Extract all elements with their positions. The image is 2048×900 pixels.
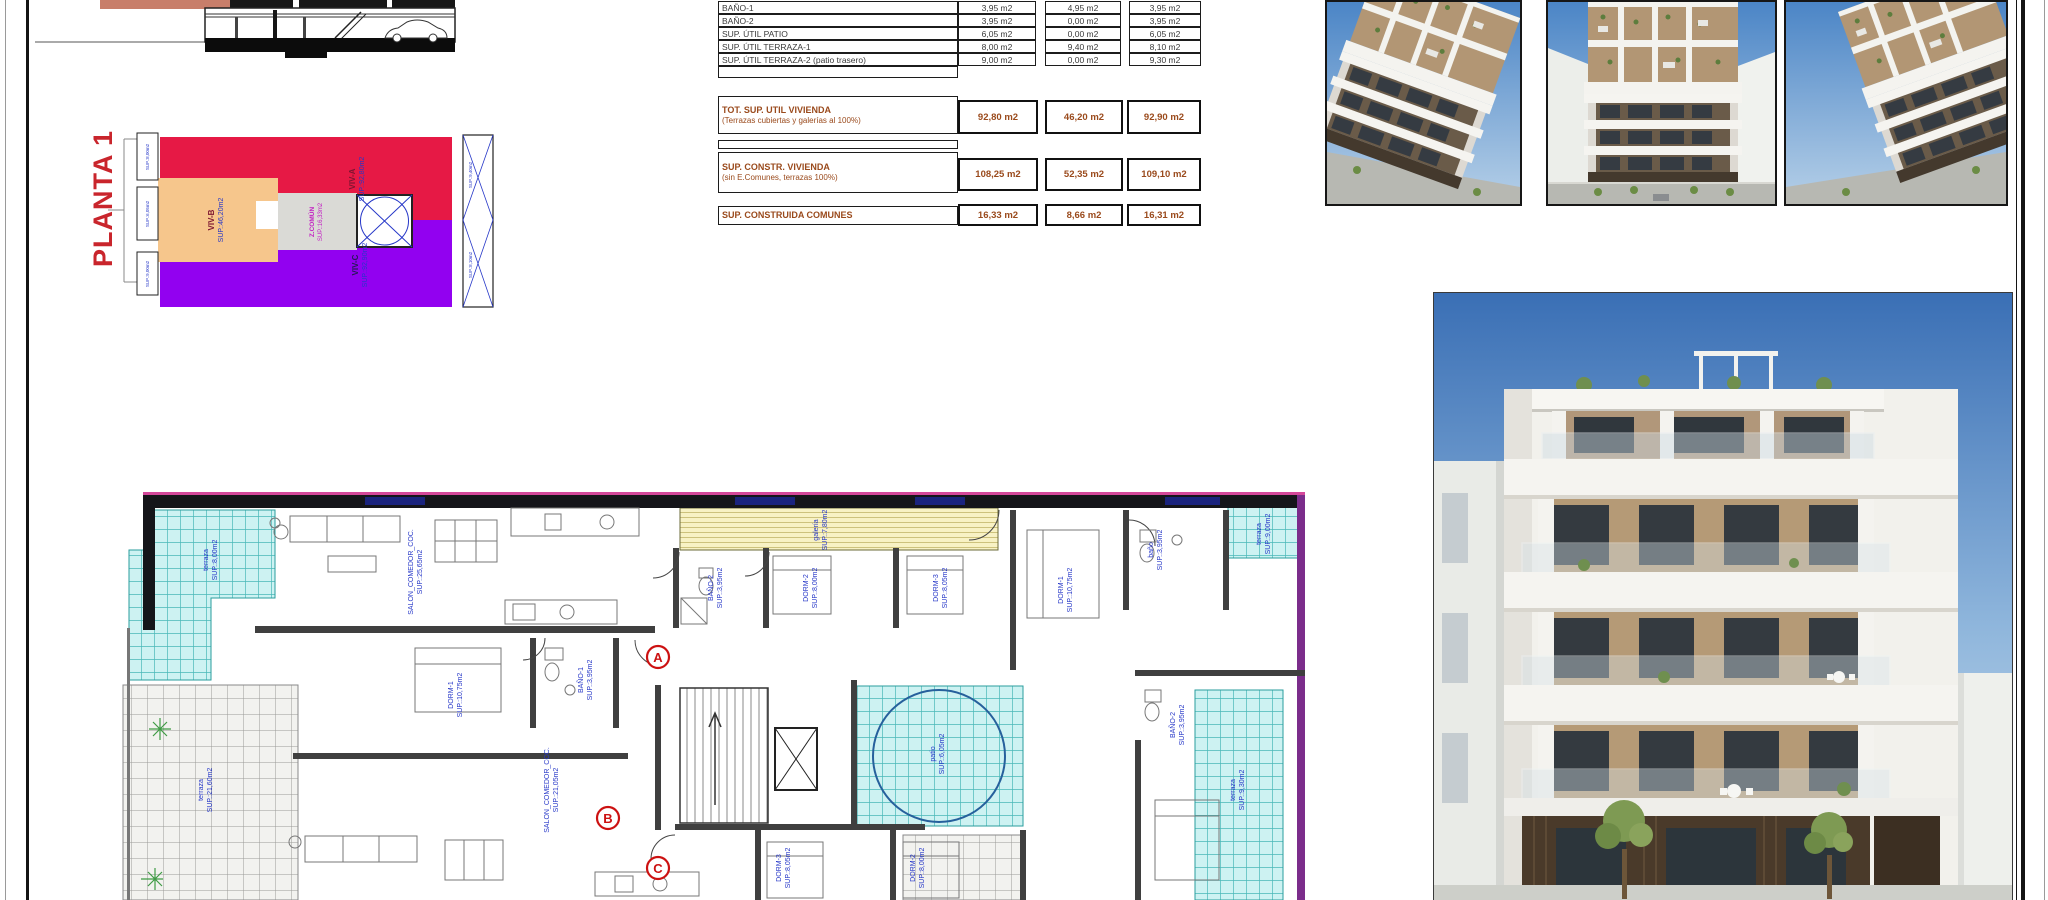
svg-text:DORM-3: DORM-3	[933, 574, 940, 602]
room-label: DORM-1SUP.:10,75m2	[1058, 568, 1074, 613]
table-cell: 9,40 m2	[1045, 40, 1121, 53]
svg-text:A: A	[653, 650, 663, 665]
svg-text:terraza: terraza	[198, 779, 205, 801]
sheet-border-right-inner	[2016, 0, 2017, 900]
room-label: DORM-3SUP.:8,05m2	[776, 848, 792, 889]
svg-text:SUP.:9,00m2: SUP.:9,00m2	[1265, 514, 1272, 555]
plan-top-accent-line	[143, 492, 1305, 495]
neighbor-left	[1548, 48, 1588, 204]
table-cell: 3,95 m2	[958, 14, 1036, 27]
facade-render	[1433, 292, 2013, 900]
pavement	[1434, 885, 2012, 900]
table-cell: 6,05 m2	[958, 27, 1036, 40]
table-row-label: SUP. ÚTIL TERRAZA-2 (patio trasero)	[718, 53, 958, 66]
unit-label-z-comun: Z.COMÚN SUP.:16,33m2	[307, 202, 324, 241]
svg-text:SUP.:92,90m2: SUP.:92,90m2	[362, 243, 369, 288]
plan-sheet: PLANTA 1	[0, 0, 2048, 900]
planta1-title: PLANTA 1	[88, 130, 118, 267]
svg-text:DORM-1: DORM-1	[1058, 576, 1065, 604]
svg-text:DORM-2: DORM-2	[910, 854, 917, 882]
svg-text:Z.COMÚN: Z.COMÚN	[307, 207, 316, 238]
svg-text:SUP.:21,60m2: SUP.:21,60m2	[207, 768, 214, 813]
sheet-border-left-thick	[26, 0, 29, 900]
planta1-title-text: PLANTA 1	[88, 130, 118, 267]
table-row-label: BAÑO-2	[718, 14, 958, 27]
ground-floor	[1504, 798, 1958, 900]
stair-col-label-2: SUP.:8,10m2	[468, 251, 473, 278]
summary-value: 108,25 m2	[958, 158, 1038, 191]
sheet-border-right-thick	[2021, 0, 2025, 900]
svg-text:VIV-A: VIV-A	[348, 168, 357, 189]
summary-label-total: TOT. SUP. UTIL VIVIENDA (Terrazas cubier…	[718, 96, 958, 134]
svg-text:SUP.:3,95m2: SUP.:3,95m2	[1179, 705, 1186, 746]
svg-text:SUP.:10,75m2: SUP.:10,75m2	[457, 673, 464, 718]
plan-left-wall	[143, 495, 155, 630]
section-marker-a: A	[647, 646, 669, 668]
stair-core-symbol	[357, 195, 412, 247]
svg-text:SUP.:3,95m2: SUP.:3,95m2	[1157, 530, 1164, 571]
table-cell: 0,00 m2	[1045, 27, 1121, 40]
svg-text:SUP.:92,80m2: SUP.:92,80m2	[359, 157, 366, 202]
car	[1653, 194, 1669, 201]
room-label: SALON_COMEDOR_COC.SUP.:21,05m2	[544, 747, 560, 833]
svg-text:terraza: terraza	[203, 549, 210, 571]
table-row-label: BAÑO-1	[718, 1, 958, 14]
areas-table: BAÑO-1 3,95 m2 4,95 m2 3,95 m2 BAÑO-2 3,…	[718, 0, 1204, 232]
plan-right-wall	[1297, 495, 1305, 900]
svg-text:C: C	[653, 861, 663, 876]
table-cell: 0,00 m2	[1045, 14, 1121, 27]
elevator	[775, 728, 817, 790]
table-cell: 0,00 m2	[1045, 53, 1121, 66]
svg-text:SUP.:8,00m2: SUP.:8,00m2	[919, 848, 926, 889]
summary-value: 92,80 m2	[958, 100, 1038, 134]
room-label: BAÑO-2SUP.:3,95m2	[1168, 705, 1186, 746]
svg-text:SUP.:21,05m2: SUP.:21,05m2	[553, 768, 560, 813]
table-spacer	[718, 66, 958, 78]
svg-text:SUP.:3,95m2: SUP.:3,95m2	[587, 660, 594, 701]
svg-text:SUP.:8,05m2: SUP.:8,05m2	[785, 848, 792, 889]
room-label: SALON_COMEDOR_COC.SUP.:25,65m2	[408, 529, 424, 615]
svg-text:SUP.:25,65m2: SUP.:25,65m2	[417, 550, 424, 595]
gallery-strip	[680, 508, 998, 550]
neighbor-building-left	[1434, 461, 1504, 900]
svg-text:VIV-C: VIV-C	[351, 254, 360, 275]
sheet-border-left-thin	[5, 0, 6, 900]
svg-text:SUP.:9,30m2: SUP.:9,30m2	[1239, 770, 1246, 811]
aerial-building	[1584, 2, 1742, 184]
table-row-label: SUP. ÚTIL PATIO	[718, 27, 958, 40]
svg-text:terraza: terraza	[1230, 779, 1237, 801]
table-cell: 6,05 m2	[1129, 27, 1201, 40]
svg-text:DORM-3: DORM-3	[776, 854, 783, 882]
table-row-label: SUP. ÚTIL TERRAZA-1	[718, 40, 958, 53]
svg-text:BAÑO-2: BAÑO-2	[706, 575, 715, 601]
svg-text:galería: galería	[813, 519, 820, 541]
table-cell: 8,00 m2	[958, 40, 1036, 53]
facade-building	[1504, 351, 1958, 900]
table-cell: 4,95 m2	[1045, 1, 1121, 14]
table-cell: 3,95 m2	[1129, 14, 1201, 27]
svg-text:SUP.:16,33m2: SUP.:16,33m2	[318, 202, 324, 241]
svg-text:terraza: terraza	[1256, 523, 1263, 545]
neighbor-building-right	[1958, 673, 2012, 900]
edge-label-2: SUP.:6,05m2	[145, 200, 150, 227]
svg-text:BAÑO-1: BAÑO-1	[576, 667, 585, 693]
plan-top-wall	[143, 495, 1305, 508]
svg-text:SUP.:3,95m2: SUP.:3,95m2	[717, 568, 724, 609]
svg-text:VIV-B: VIV-B	[207, 209, 216, 230]
svg-text:SUP.:46,20m2: SUP.:46,20m2	[218, 198, 225, 243]
svg-text:DORM-1: DORM-1	[448, 681, 455, 709]
sheet-border-right-thin	[2044, 0, 2045, 900]
staircase	[680, 688, 768, 823]
stair-col-label-1: SUP.:9,40m2	[468, 161, 473, 188]
room-label: BAÑO-2SUP.:3,95m2	[706, 568, 724, 609]
table-spacer	[718, 140, 958, 149]
table-cell: 9,30 m2	[1129, 53, 1201, 66]
summary-value: 109,10 m2	[1127, 158, 1201, 191]
svg-text:DORM-2: DORM-2	[803, 574, 810, 602]
aerial-render-1	[1325, 0, 1522, 206]
table-cell: 9,00 m2	[958, 53, 1036, 66]
summary-value: 8,66 m2	[1045, 204, 1123, 226]
summary-value: 52,35 m2	[1045, 158, 1123, 191]
neighbor-right	[1738, 52, 1775, 204]
table-cell: 8,10 m2	[1129, 40, 1201, 53]
room-label: BAÑO-1SUP.:3,95m2	[576, 660, 594, 701]
section-drawing	[35, 0, 460, 58]
summary-value: 46,20 m2	[1045, 100, 1123, 134]
svg-text:SUP.:10,75m2: SUP.:10,75m2	[1067, 568, 1074, 613]
room-label: DORM-1SUP.:10,75m2	[448, 673, 464, 718]
floor-plan: A B C terrazaSUP.:8,00m2 SALON_COMEDOR_C…	[115, 490, 1320, 900]
table-cell: 3,95 m2	[1129, 1, 1201, 14]
summary-label-constr: SUP. CONSTR. VIVIENDA (sin E.Comunes, te…	[718, 152, 958, 193]
summary-label-comunes: SUP. CONSTRUIDA COMUNES	[718, 206, 958, 225]
svg-text:SUP.:8,00m2: SUP.:8,00m2	[812, 568, 819, 609]
svg-text:SUP.:7,80m2: SUP.:7,80m2	[822, 510, 829, 551]
svg-text:SUP.:8,00m2: SUP.:8,00m2	[212, 540, 219, 581]
section-base-slab	[205, 38, 455, 52]
right-terrace-column	[463, 135, 493, 307]
svg-text:baño: baño	[1148, 542, 1155, 558]
aerial-render-2	[1546, 0, 1777, 206]
table-cell: 3,95 m2	[958, 1, 1036, 14]
edge-label-1: SUP.:8,00m2	[145, 143, 150, 170]
edge-label-3: SUP.:9,00m2	[145, 260, 150, 287]
section-marker-c: C	[647, 857, 669, 879]
svg-text:SALON_COMEDOR_COC.: SALON_COMEDOR_COC.	[544, 747, 551, 833]
summary-value: 16,33 m2	[958, 204, 1038, 226]
svg-text:patio: patio	[930, 746, 937, 761]
svg-text:SUP.:6,05m2: SUP.:6,05m2	[939, 734, 946, 775]
room-label: DORM-3SUP.:8,05m2	[933, 568, 949, 609]
planta1-key-plan: PLANTA 1	[60, 95, 520, 343]
aerial-render-3	[1784, 0, 2008, 206]
svg-text:B: B	[603, 811, 612, 826]
section-marker-b: B	[597, 807, 619, 829]
summary-value: 92,90 m2	[1127, 100, 1201, 134]
summary-value: 16,31 m2	[1127, 204, 1201, 226]
room-label: DORM-2SUP.:8,00m2	[803, 568, 819, 609]
svg-text:BAÑO-2: BAÑO-2	[1168, 712, 1177, 738]
svg-text:SUP.:8,05m2: SUP.:8,05m2	[942, 568, 949, 609]
svg-text:SALON_COMEDOR_COC.: SALON_COMEDOR_COC.	[408, 529, 415, 615]
